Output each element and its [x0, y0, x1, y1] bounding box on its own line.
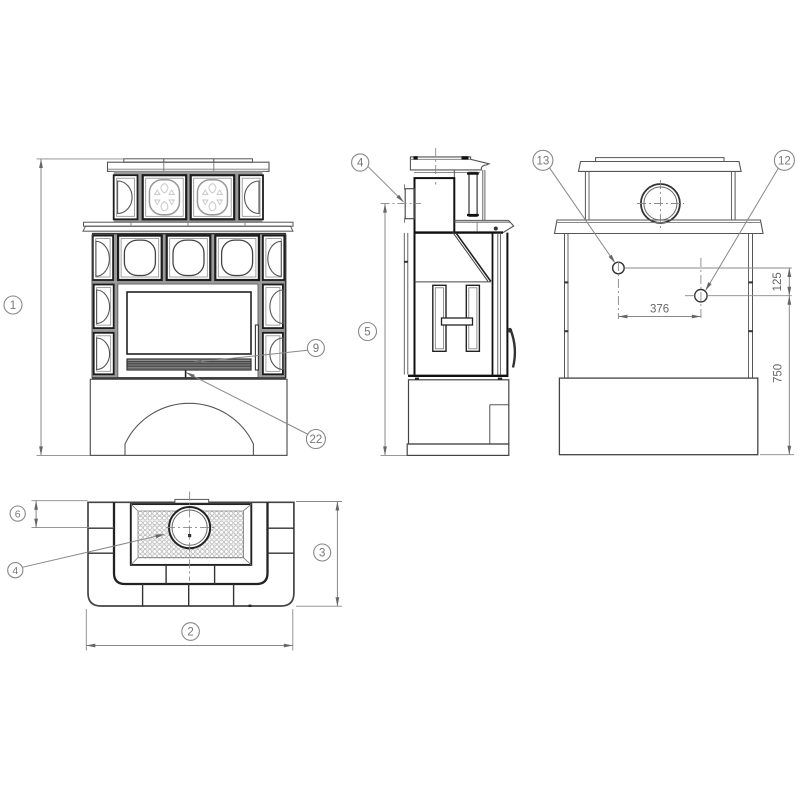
svg-text:2: 2	[187, 627, 193, 639]
svg-text:376: 376	[650, 303, 669, 315]
svg-text:5: 5	[364, 327, 370, 339]
svg-text:4: 4	[357, 158, 364, 170]
svg-text:750: 750	[773, 364, 785, 383]
svg-text:1: 1	[10, 300, 16, 312]
svg-text:9: 9	[313, 343, 319, 355]
svg-text:12: 12	[778, 155, 791, 167]
svg-text:4: 4	[12, 565, 18, 577]
svg-text:13: 13	[537, 155, 550, 167]
svg-text:6: 6	[15, 508, 21, 520]
svg-text:3: 3	[319, 548, 325, 560]
svg-text:22: 22	[310, 434, 323, 446]
svg-text:125: 125	[772, 272, 784, 291]
